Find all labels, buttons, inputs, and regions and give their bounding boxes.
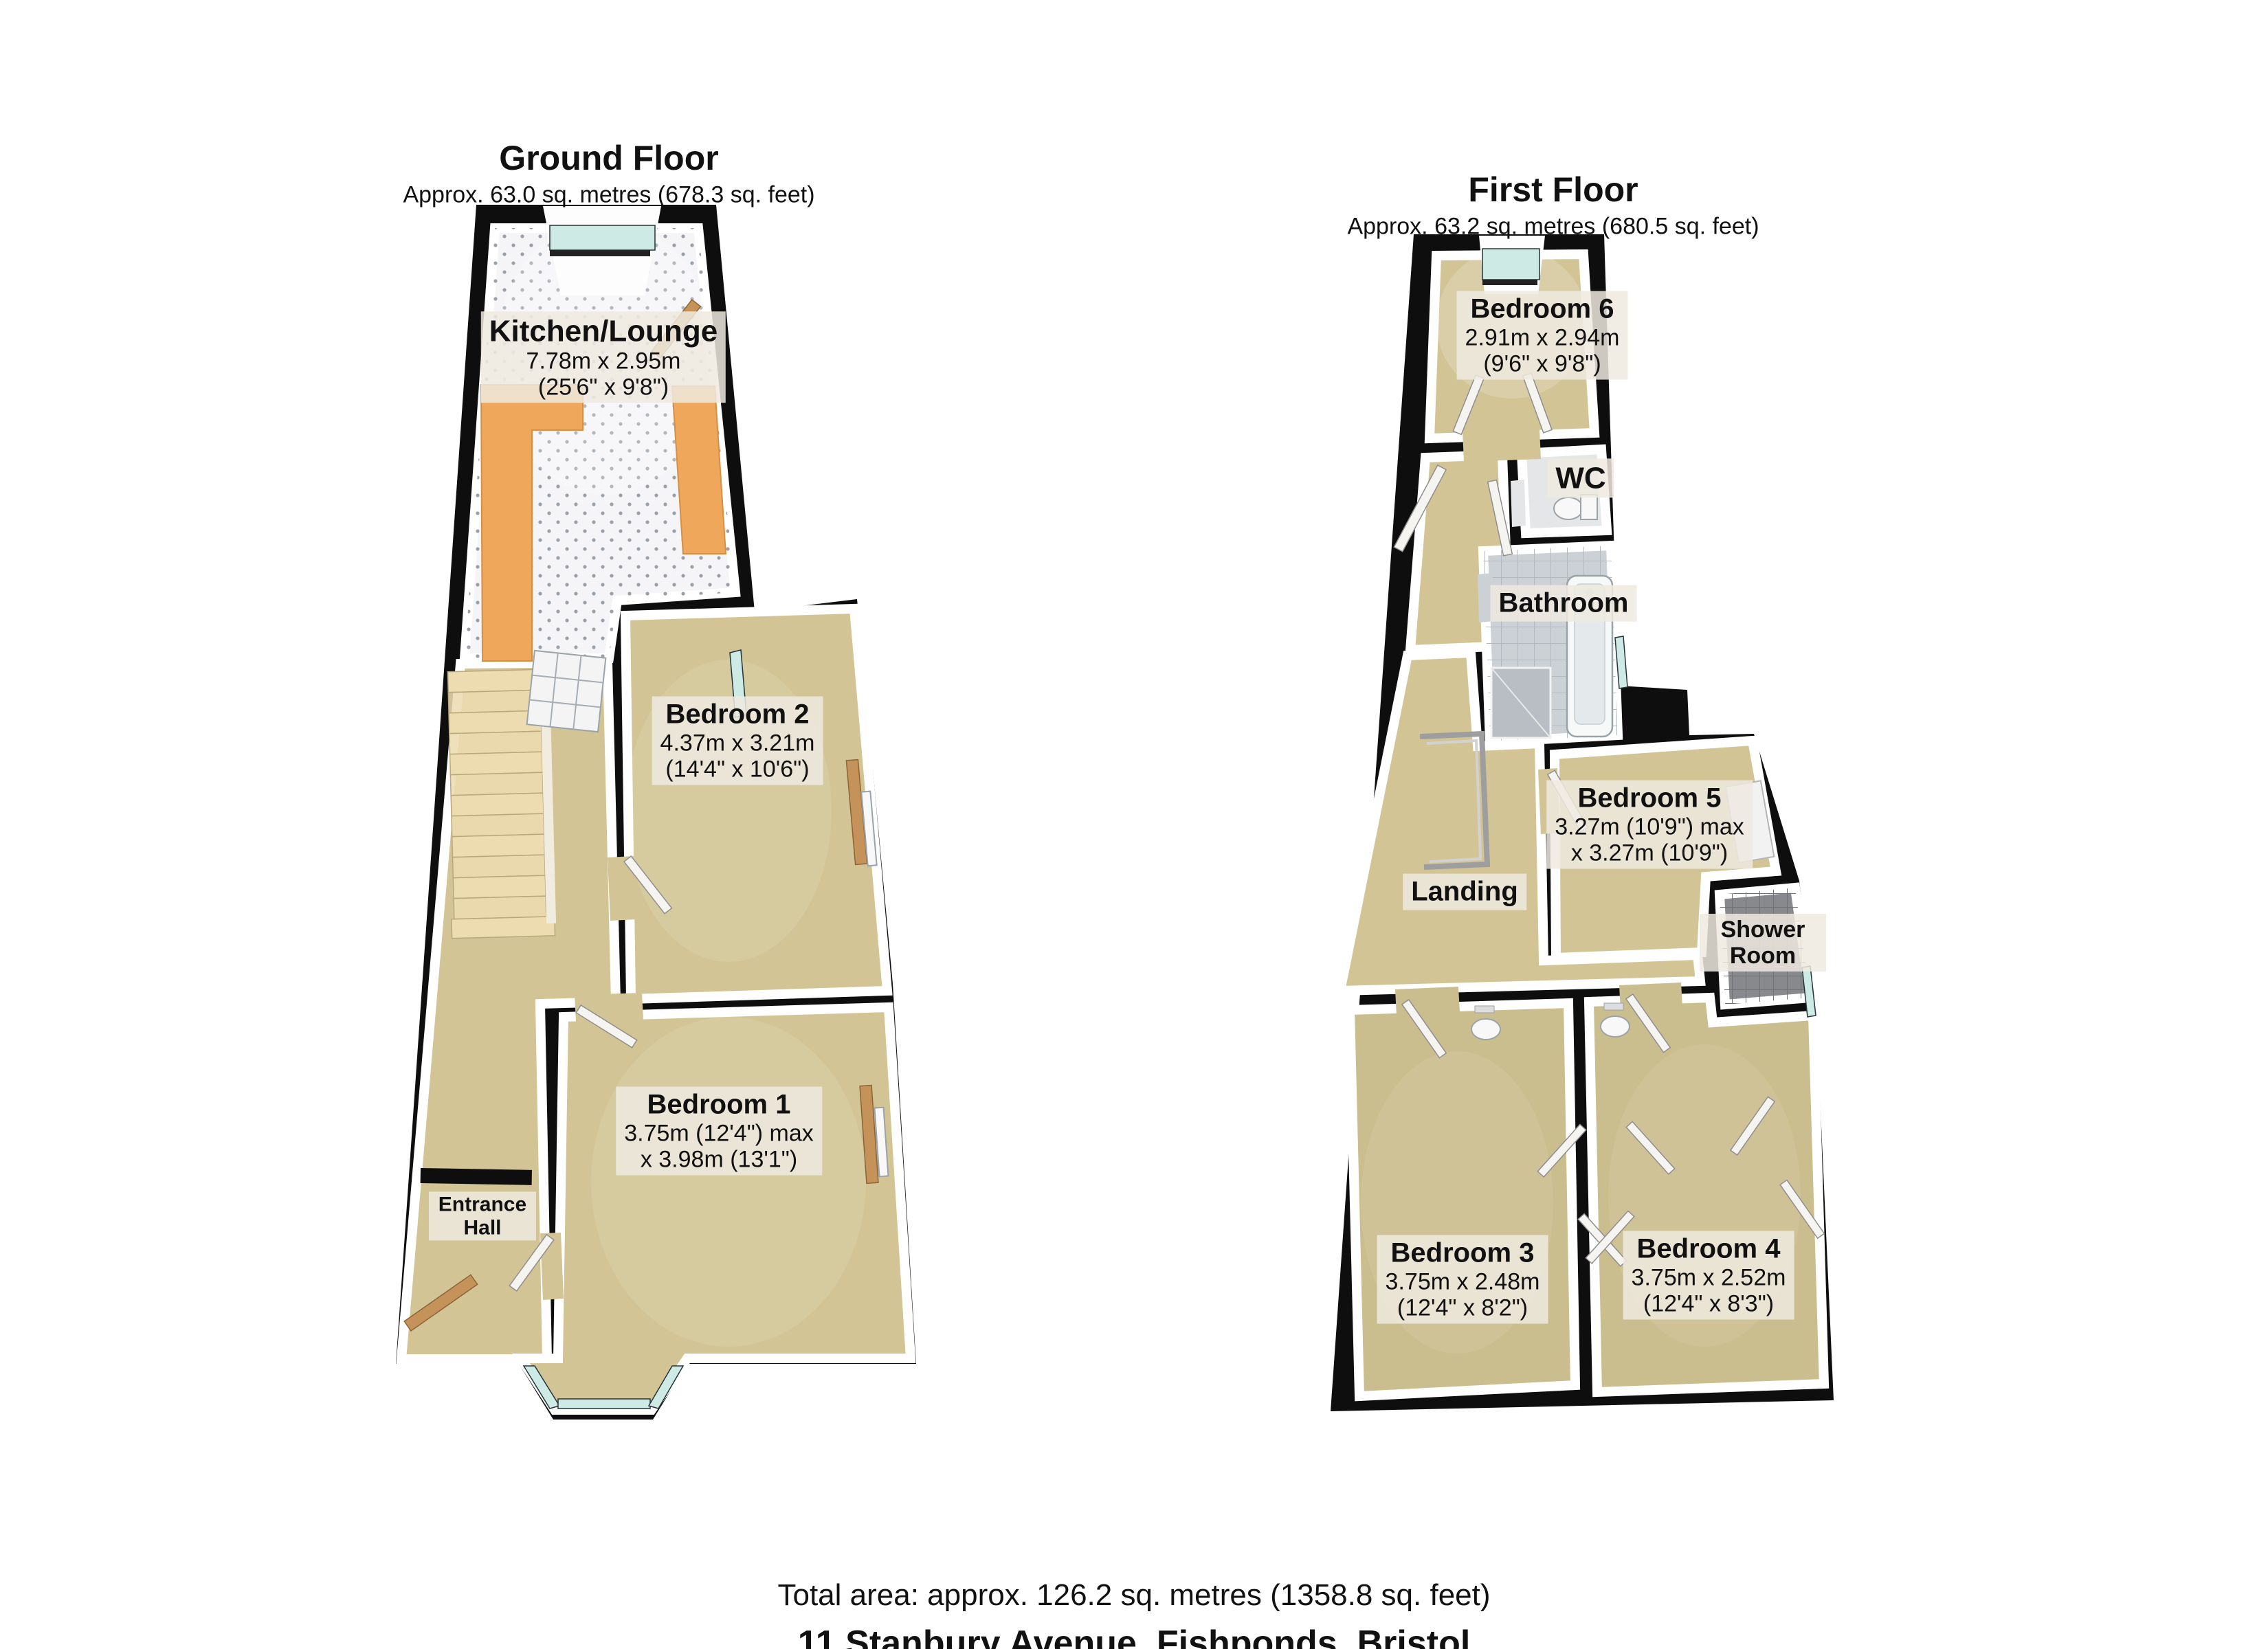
room-name: Bedroom 1: [624, 1090, 814, 1121]
room-dim-imperial: (25'6" x 9'8"): [489, 374, 718, 401]
room-label-bedroom-6: Bedroom 6 2.91m x 2.94m (9'6" x 9'8"): [1457, 291, 1628, 380]
bedroom6-door-opening: [1463, 429, 1541, 462]
room-light: [591, 1017, 866, 1347]
room-name: WC: [1555, 461, 1605, 495]
room-dim-imperial: (12'4" x 8'2"): [1386, 1294, 1540, 1321]
address-text: 11 Stanbury Avenue, Fishponds, Bristol: [798, 1623, 1471, 1649]
wc-door-opening: [1511, 480, 1526, 527]
bedroom6-window-sill: [1482, 280, 1537, 285]
first-floor-title: First Floor: [1468, 170, 1638, 210]
room-name: Bedroom 2: [660, 699, 815, 730]
room-dim-metric: 3.75m x 2.52m: [1632, 1264, 1786, 1290]
room-label-bedroom-1: Bedroom 1 3.75m (12'4") max x 3.98m (13'…: [616, 1087, 822, 1176]
room-name: Kitchen/Lounge: [489, 314, 718, 348]
room-name: Bedroom 6: [1465, 294, 1620, 325]
bay-window-centre-glass: [558, 1399, 650, 1409]
toilet-icon: [1554, 497, 1583, 519]
floorplan-page: Ground Floor Approx. 63.0 sq. metres (67…: [0, 0, 2268, 1649]
bedroom6-window-glass: [1482, 249, 1539, 280]
room-name: Shower Room: [1708, 917, 1818, 969]
room-label-bedroom-5: Bedroom 5 3.27m (10'9") max x 3.27m (10'…: [1546, 781, 1753, 869]
appliance: [527, 651, 606, 732]
room-dim-metric: 4.37m x 3.21m: [660, 730, 815, 756]
room-label-bedroom-3: Bedroom 3 3.75m x 2.48m (12'4" x 8'2"): [1377, 1235, 1548, 1324]
bedroom4-door-opening: [1619, 983, 1682, 1010]
entrance-hall-wall: [421, 1168, 532, 1185]
room-label-kitchen-lounge: Kitchen/Lounge 7.78m x 2.95m (25'6" x 9'…: [481, 311, 726, 403]
room-dim-imperial: (9'6" x 9'8"): [1465, 350, 1620, 377]
room-dim-metric: 3.27m (10'9") max: [1555, 814, 1744, 840]
ground-floor-title: Ground Floor: [499, 138, 718, 178]
room-name: Bedroom 3: [1386, 1238, 1540, 1269]
kitchen-window-sill: [550, 250, 650, 256]
room-name: Entrance Hall: [434, 1193, 531, 1239]
room-dim-imperial: x 3.27m (10'9"): [1555, 840, 1744, 866]
ground-floor-subtitle: Approx. 63.0 sq. metres (678.3 sq. feet): [403, 182, 814, 209]
room-label-wc: WC: [1547, 458, 1614, 497]
room-label-landing: Landing: [1403, 874, 1526, 910]
room-dim-metric: 3.75m (12'4") max: [624, 1120, 814, 1146]
room-dim-imperial: x 3.98m (13'1"): [624, 1146, 814, 1172]
room-label-bedroom-4: Bedroom 4 3.75m x 2.52m (12'4" x 8'3"): [1623, 1231, 1794, 1320]
room-dim-metric: 3.75m x 2.48m: [1386, 1268, 1540, 1294]
room-dim-metric: 2.91m x 2.94m: [1465, 324, 1620, 350]
room-dim-imperial: (12'4" x 8'3"): [1632, 1290, 1786, 1316]
total-area-text: Total area: approx. 126.2 sq. metres (13…: [777, 1578, 1490, 1613]
room-label-shower-room: Shower Room: [1700, 914, 1826, 972]
room-dim-metric: 7.78m x 2.95m: [489, 348, 718, 374]
room-dim-imperial: (14'4" x 10'6"): [660, 756, 815, 782]
room-name: Bedroom 4: [1632, 1234, 1786, 1265]
bedroom3-door-opening: [1395, 987, 1460, 1016]
room-label-entrance-hall: Entrance Hall: [429, 1191, 536, 1240]
room-name: Landing: [1411, 877, 1518, 908]
room-name: Bathroom: [1499, 588, 1629, 619]
room-name: Bedroom 5: [1555, 783, 1744, 814]
first-floor-subtitle: Approx. 63.2 sq. metres (680.5 sq. feet): [1347, 214, 1759, 240]
room-label-bathroom: Bathroom: [1491, 585, 1637, 622]
toilet-cistern: [1581, 495, 1597, 519]
kitchen-window-glass: [550, 225, 655, 250]
shower-cubicle: [1491, 668, 1550, 738]
room-label-bedroom-2: Bedroom 2 4.37m x 3.21m (14'4" x 10'6"): [652, 697, 823, 785]
